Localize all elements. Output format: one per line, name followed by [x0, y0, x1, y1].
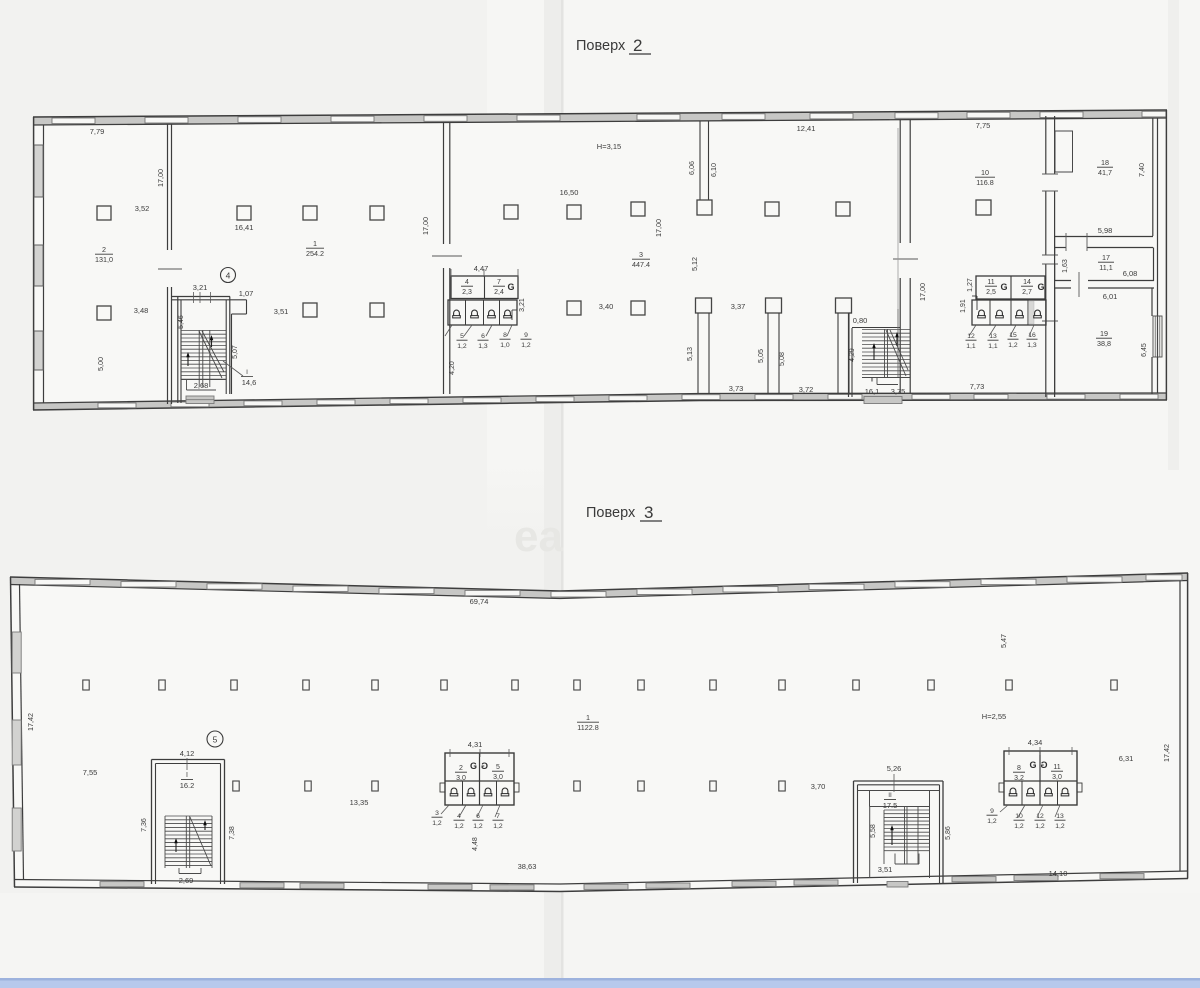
svg-text:1,2: 1,2: [1035, 823, 1045, 830]
svg-text:G: G: [481, 761, 488, 771]
svg-text:2,7: 2,7: [1022, 289, 1032, 296]
svg-text:5,12: 5,12: [690, 257, 699, 271]
svg-text:7,73: 7,73: [970, 382, 985, 391]
svg-text:5,58: 5,58: [870, 824, 877, 838]
svg-text:I: I: [186, 772, 188, 779]
svg-text:5: 5: [460, 333, 464, 340]
svg-text:13: 13: [989, 333, 997, 340]
svg-text:7: 7: [497, 279, 501, 286]
svg-text:G: G: [507, 282, 514, 292]
svg-text:3,2: 3,2: [1014, 775, 1024, 782]
svg-text:16: 16: [1028, 332, 1036, 339]
svg-text:3,0: 3,0: [1052, 774, 1062, 781]
svg-text:3,48: 3,48: [134, 306, 149, 315]
svg-text:2: 2: [633, 36, 642, 55]
svg-text:12: 12: [967, 333, 975, 340]
svg-text:3,52: 3,52: [135, 204, 150, 213]
svg-text:7,55: 7,55: [83, 768, 98, 777]
svg-text:447.4: 447.4: [632, 260, 650, 269]
svg-text:4,31: 4,31: [468, 740, 483, 749]
svg-text:2,3: 2,3: [462, 289, 472, 296]
svg-text:3,70: 3,70: [811, 782, 826, 791]
svg-text:6: 6: [481, 333, 485, 340]
svg-text:1,2: 1,2: [1014, 823, 1024, 830]
svg-text:3,51: 3,51: [878, 865, 893, 874]
svg-text:4: 4: [226, 271, 231, 281]
svg-text:15: 15: [1009, 332, 1017, 339]
svg-text:38,8: 38,8: [1097, 339, 1111, 348]
svg-text:6,08: 6,08: [1123, 269, 1138, 278]
svg-text:2,69: 2,69: [179, 876, 194, 885]
svg-text:1: 1: [313, 239, 317, 248]
svg-text:5,46: 5,46: [178, 315, 185, 329]
svg-text:2,5: 2,5: [986, 289, 996, 296]
svg-text:116.8: 116.8: [976, 178, 993, 187]
svg-text:17,00: 17,00: [918, 283, 927, 301]
svg-text:9: 9: [990, 808, 994, 815]
svg-text:Поверх: Поверх: [576, 38, 626, 54]
svg-text:1,2: 1,2: [1055, 823, 1065, 830]
svg-text:1,2: 1,2: [1008, 342, 1018, 349]
svg-text:4: 4: [457, 813, 461, 820]
svg-text:3,37: 3,37: [731, 302, 746, 311]
svg-text:6,10: 6,10: [709, 163, 718, 177]
svg-text:3,21: 3,21: [193, 283, 208, 292]
svg-text:5,00: 5,00: [96, 357, 105, 371]
svg-text:131,0: 131,0: [95, 255, 113, 264]
svg-text:II: II: [888, 792, 892, 799]
svg-text:12,41: 12,41: [797, 124, 816, 133]
svg-text:1,2: 1,2: [432, 820, 442, 827]
svg-text:3,51: 3,51: [274, 307, 289, 316]
svg-text:17,42: 17,42: [1162, 744, 1171, 762]
svg-text:13,35: 13,35: [350, 798, 369, 807]
svg-text:5,05: 5,05: [756, 349, 765, 363]
svg-text:16,1: 16,1: [865, 387, 880, 396]
svg-text:3,75: 3,75: [891, 387, 906, 396]
svg-text:254.2: 254.2: [306, 249, 324, 258]
svg-text:69,74: 69,74: [470, 597, 489, 606]
svg-text:3,73: 3,73: [729, 384, 744, 393]
svg-text:2,68: 2,68: [194, 381, 209, 390]
svg-text:1,27: 1,27: [967, 278, 974, 292]
svg-text:5,08: 5,08: [777, 352, 786, 366]
svg-text:G: G: [1000, 282, 1007, 292]
svg-text:5,98: 5,98: [1098, 226, 1113, 235]
svg-text:17: 17: [1102, 253, 1110, 262]
svg-text:6,45: 6,45: [1141, 343, 1148, 357]
svg-text:1,2: 1,2: [454, 823, 464, 830]
svg-text:1,2: 1,2: [493, 823, 503, 830]
svg-text:4,29: 4,29: [849, 348, 856, 362]
svg-text:17.5: 17.5: [883, 801, 898, 810]
svg-text:6,01: 6,01: [1103, 292, 1118, 301]
svg-text:7,40: 7,40: [1137, 163, 1146, 177]
svg-text:16,41: 16,41: [235, 223, 254, 232]
svg-text:4: 4: [465, 279, 469, 286]
svg-text:14,10: 14,10: [1049, 869, 1068, 878]
svg-text:4,48: 4,48: [472, 837, 479, 851]
svg-text:12: 12: [1036, 813, 1044, 820]
svg-text:1,2: 1,2: [457, 343, 467, 350]
svg-text:8: 8: [1017, 765, 1021, 772]
svg-text:9: 9: [524, 332, 528, 339]
svg-text:5: 5: [496, 764, 500, 771]
svg-text:1,3: 1,3: [478, 343, 488, 350]
svg-text:5,07: 5,07: [232, 345, 239, 359]
svg-text:41,7: 41,7: [1098, 168, 1112, 177]
svg-text:8: 8: [503, 332, 507, 339]
svg-text:2,4: 2,4: [494, 289, 504, 296]
svg-text:1,2: 1,2: [521, 342, 531, 349]
svg-text:17,00: 17,00: [654, 219, 663, 237]
svg-text:0,80: 0,80: [853, 316, 868, 325]
svg-text:5: 5: [213, 735, 218, 745]
svg-text:G: G: [1029, 760, 1036, 770]
svg-text:17,42: 17,42: [26, 713, 35, 731]
svg-text:11: 11: [987, 279, 994, 286]
svg-text:17,00: 17,00: [156, 169, 165, 187]
svg-text:G: G: [1037, 282, 1044, 292]
svg-text:I: I: [246, 369, 248, 376]
svg-text:5,26: 5,26: [887, 764, 902, 773]
svg-text:1: 1: [586, 713, 590, 722]
svg-text:10: 10: [1015, 813, 1023, 820]
svg-text:4,12: 4,12: [180, 749, 195, 758]
svg-text:5,13: 5,13: [685, 347, 694, 361]
svg-text:4,47: 4,47: [474, 264, 489, 273]
svg-text:еа: еа: [514, 512, 563, 561]
svg-text:11,1: 11,1: [1099, 263, 1112, 272]
svg-text:H=2,55: H=2,55: [982, 712, 1006, 721]
svg-text:3,0: 3,0: [493, 774, 503, 781]
svg-text:1,07: 1,07: [239, 289, 254, 298]
svg-text:1,63: 1,63: [1062, 259, 1069, 273]
svg-text:Поверх: Поверх: [586, 505, 636, 521]
svg-text:1,1: 1,1: [966, 343, 976, 350]
svg-text:7,79: 7,79: [90, 127, 105, 136]
svg-text:4,34: 4,34: [1028, 738, 1043, 747]
svg-text:14: 14: [1023, 279, 1031, 286]
svg-text:18: 18: [1101, 158, 1109, 167]
svg-text:1,0: 1,0: [500, 342, 510, 349]
svg-text:4,20: 4,20: [449, 361, 456, 375]
svg-text:19: 19: [1100, 329, 1108, 338]
svg-text:6,31: 6,31: [1119, 754, 1134, 763]
svg-text:3: 3: [639, 250, 643, 259]
svg-text:H=3,15: H=3,15: [597, 142, 621, 151]
svg-text:17,00: 17,00: [421, 217, 430, 235]
svg-text:II: II: [870, 378, 874, 384]
svg-text:7,75: 7,75: [976, 121, 991, 130]
svg-text:16.2: 16.2: [180, 781, 195, 790]
svg-text:3,21: 3,21: [519, 298, 526, 312]
svg-text:38,63: 38,63: [518, 862, 537, 871]
svg-text:3,40: 3,40: [599, 302, 614, 311]
svg-text:3: 3: [435, 810, 439, 817]
svg-text:7,36: 7,36: [141, 818, 148, 832]
svg-text:16,50: 16,50: [560, 188, 579, 197]
svg-text:G: G: [1040, 760, 1047, 770]
svg-text:5,86: 5,86: [945, 826, 952, 840]
svg-text:2: 2: [102, 245, 106, 254]
svg-text:1,3: 1,3: [1027, 342, 1037, 349]
svg-text:2: 2: [459, 765, 463, 772]
svg-text:13: 13: [1056, 813, 1064, 820]
svg-text:6: 6: [476, 813, 480, 820]
svg-text:14,6: 14,6: [242, 378, 257, 387]
svg-text:1,1: 1,1: [988, 343, 998, 350]
svg-text:6,06: 6,06: [687, 161, 696, 175]
svg-text:5,47: 5,47: [999, 634, 1008, 648]
svg-text:1,91: 1,91: [960, 299, 967, 313]
svg-text:1122.8: 1122.8: [577, 723, 598, 732]
svg-text:1,2: 1,2: [473, 823, 483, 830]
svg-text:3,72: 3,72: [799, 385, 814, 394]
svg-text:10: 10: [981, 168, 989, 177]
svg-text:7,38: 7,38: [229, 826, 236, 840]
svg-text:11: 11: [1053, 764, 1060, 771]
svg-text:3,0: 3,0: [456, 775, 466, 782]
svg-text:1,2: 1,2: [987, 818, 997, 825]
svg-text:7: 7: [496, 813, 500, 820]
svg-text:G: G: [470, 761, 477, 771]
svg-text:3: 3: [644, 503, 653, 522]
